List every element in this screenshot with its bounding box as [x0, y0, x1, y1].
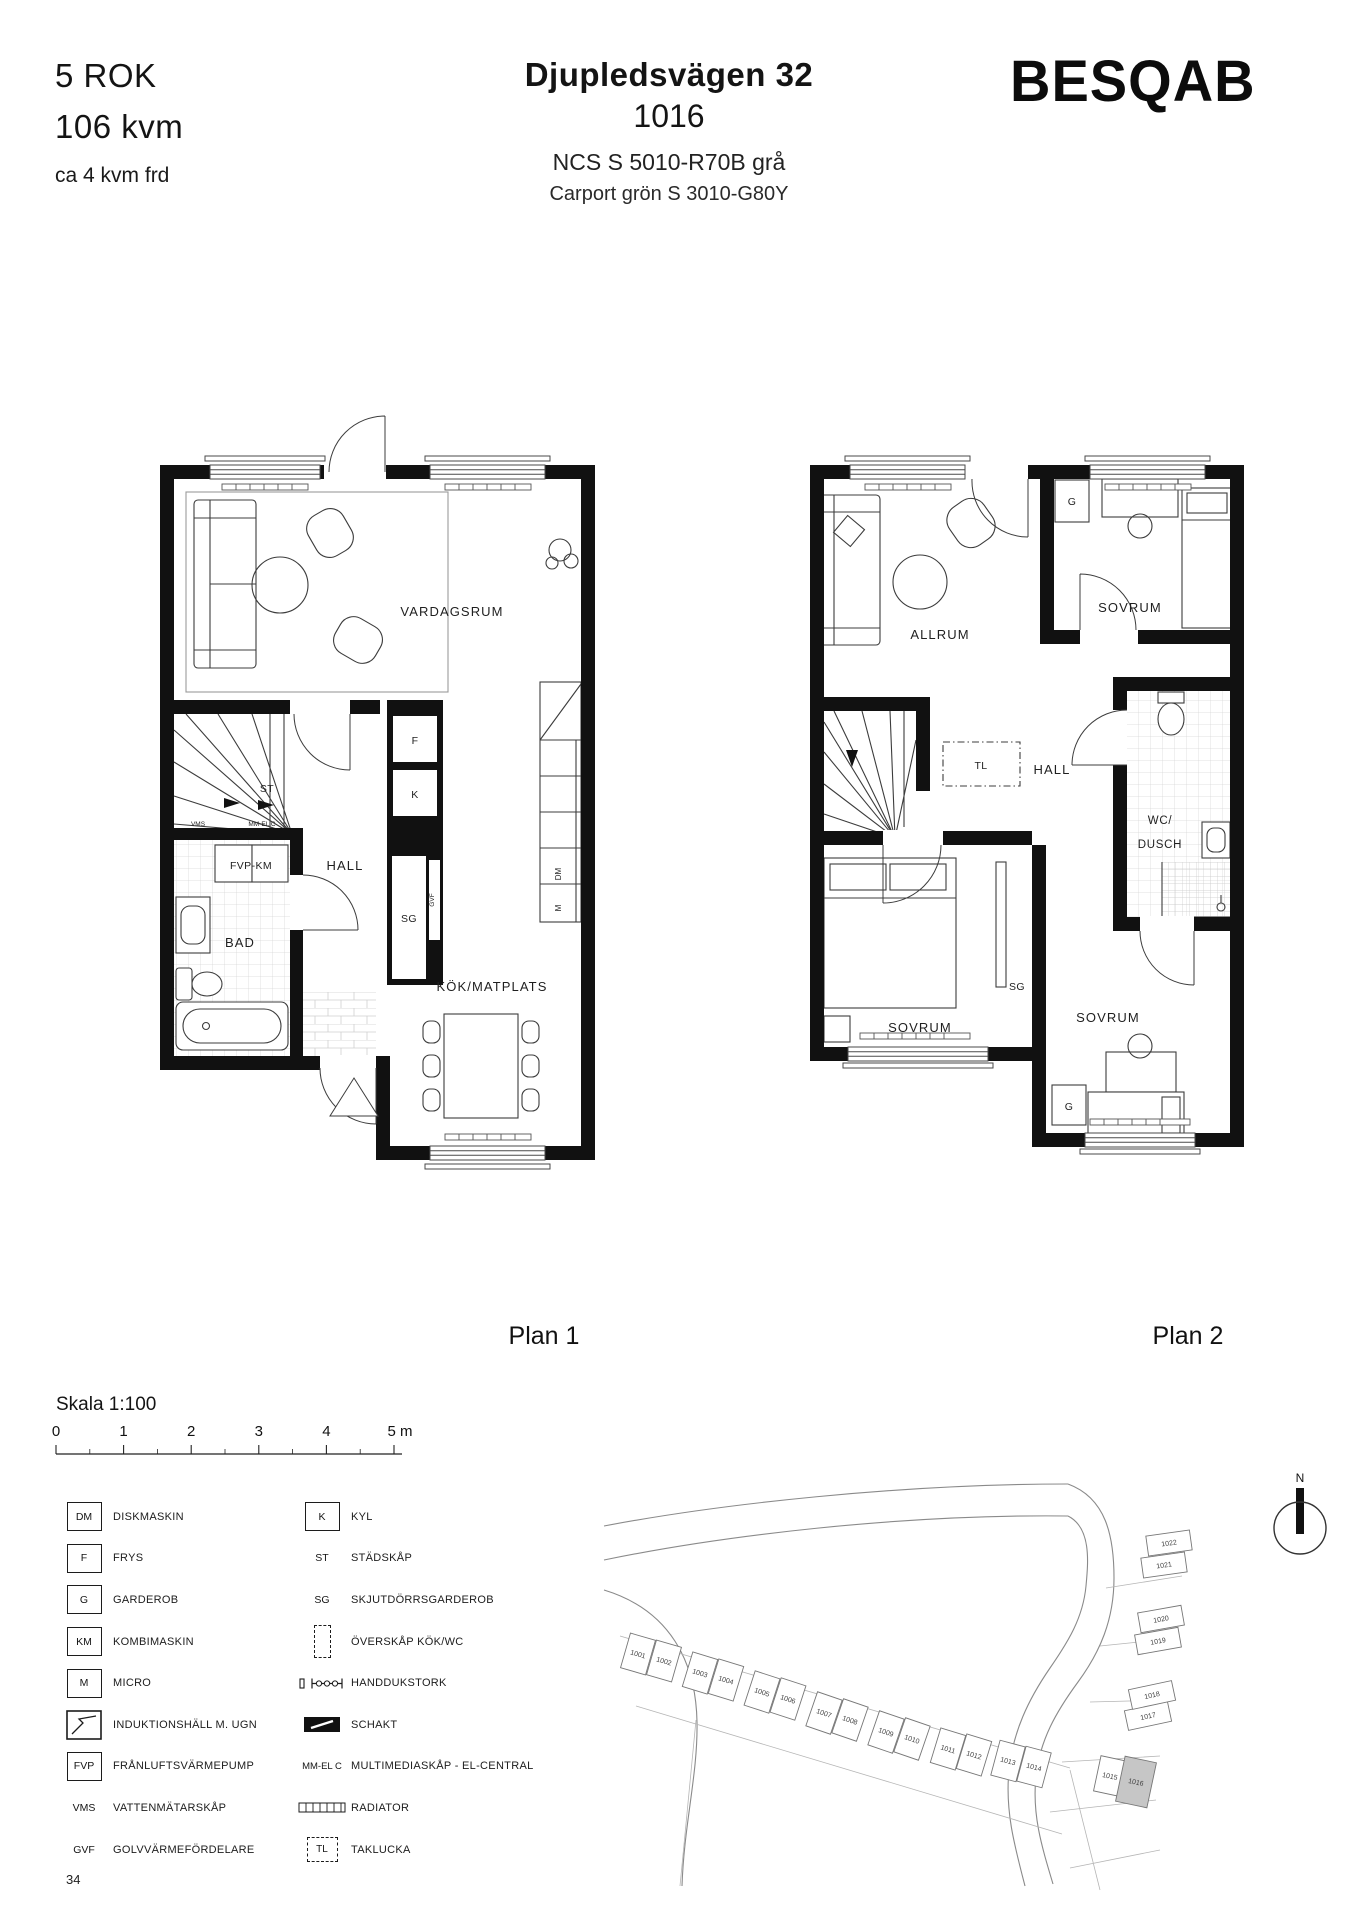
room-label-hall: HALL — [1034, 762, 1071, 777]
plan1-labels: VARDAGSRUM HALL BAD KÖK/MATPLATS FVP-KM … — [191, 604, 563, 994]
plan1-caption: Plan 1 — [434, 1322, 654, 1351]
bedroom3-door — [1140, 931, 1194, 985]
north-arrow: N — [1274, 1471, 1326, 1554]
legend-row: STSTÄDSKÅP — [293, 1538, 643, 1580]
sofa — [818, 495, 880, 645]
sink — [176, 897, 210, 953]
bathtub — [176, 1002, 288, 1050]
ruler-tick-4: 4 — [322, 1423, 330, 1440]
gvf-symbol: GVF — [73, 1844, 95, 1856]
room-label-kok: KÖK/MATPLATS — [437, 979, 548, 994]
legend-row: ÖVERSKÅP KÖK/WC — [293, 1621, 643, 1663]
st-symbol: ST — [315, 1552, 328, 1564]
ruler-tick-3: 3 — [255, 1423, 263, 1440]
north-label: N — [1296, 1471, 1305, 1485]
armchair — [941, 492, 1002, 554]
fvp-symbol: FVP — [67, 1752, 102, 1781]
double-bed — [824, 858, 956, 1008]
legend-row: GVFGOLVVÄRMEFÖRDELARE — [55, 1829, 325, 1871]
sitemap-roads — [604, 1484, 1114, 1886]
rug — [186, 492, 448, 692]
label-dm: DM — [554, 867, 563, 880]
unit-number: 1016 — [433, 98, 905, 135]
floorplan-sheet: 5 ROK 106 kvm ca 4 kvm frd Djupledsvägen… — [0, 0, 1366, 1931]
ruler-tick-0: 0 — [52, 1423, 60, 1440]
tl-symbol: TL — [307, 1837, 338, 1862]
stair-arrow — [224, 798, 240, 808]
label-g2: G — [1065, 1101, 1074, 1113]
sg-symbol: SG — [314, 1594, 329, 1606]
legend-row: FVPFRÅNLUFTSVÄRMEPUMP — [55, 1746, 325, 1788]
room-label-allrum: ALLRUM — [910, 627, 969, 642]
legend-row: TLTAKLUCKA — [293, 1829, 643, 1871]
round-table — [893, 555, 947, 609]
single-bed — [1182, 488, 1232, 628]
page-number: 34 — [66, 1872, 80, 1887]
stair-arrow — [846, 750, 858, 767]
dining-table — [444, 1014, 518, 1118]
ruler-tick-5: 5 m — [387, 1423, 412, 1440]
apartment-spec: 5 ROK 106 kvm ca 4 kvm frd — [55, 50, 183, 188]
towel-rail-icon — [299, 1676, 345, 1691]
desk-chair — [1128, 514, 1152, 538]
label-mm-el-c: MM-EL C — [248, 821, 276, 828]
bathroom-door — [303, 875, 358, 930]
wall-cabinet-icon — [314, 1625, 331, 1658]
dining-chairs — [423, 1021, 539, 1111]
entrance-marker — [330, 1078, 378, 1116]
stair-landing-door — [972, 479, 1028, 537]
legend-row: KKYL — [293, 1496, 643, 1538]
single-bed — [1088, 1092, 1184, 1138]
room-label-bad: BAD — [225, 935, 255, 950]
legend-row: HANDDUKSTORK — [293, 1662, 643, 1704]
rooms-count: 5 ROK — [55, 50, 183, 101]
dm-symbol: DM — [67, 1502, 102, 1531]
radiator-icon — [298, 1802, 346, 1813]
sink — [1202, 822, 1230, 858]
room-label-hall: HALL — [327, 858, 364, 873]
legend-row: DMDISKMASKIN — [55, 1496, 325, 1538]
room-label-sovrum2: SOVRUM — [888, 1020, 952, 1035]
label-k: K — [411, 789, 418, 801]
besqab-logo: BESQAB — [1010, 47, 1256, 115]
g-symbol: G — [67, 1585, 102, 1614]
shower-floor-tiles — [1162, 862, 1230, 917]
ruler-tick-1: 1 — [119, 1423, 127, 1440]
sliding-wardrobe — [996, 862, 1006, 987]
legend-row: MM-EL CMULTIMEDIASKÅP - EL-CENTRAL — [293, 1746, 643, 1788]
plan1-furniture — [174, 492, 581, 1118]
sitemap-lot-1021: 1021 — [1141, 1552, 1187, 1578]
storage-area: ca 4 kvm frd — [55, 164, 183, 188]
label-st: ST — [260, 783, 274, 795]
room-label-dusch: DUSCH — [1138, 839, 1182, 851]
sofa — [194, 500, 256, 668]
label-vms: VMS — [191, 821, 206, 828]
round-table — [252, 557, 308, 613]
label-tl: TL — [974, 760, 987, 772]
label-fvp-km: FVP-KM — [230, 860, 272, 872]
sheet-title: Djupledsvägen 32 1016 NCS S 5010-R70B gr… — [433, 56, 905, 206]
site-map: 1001100210031004100510061007100810091010… — [600, 1470, 1340, 1900]
km-symbol: KM — [67, 1627, 102, 1656]
facade-color-spec: NCS S 5010-R70B grå — [433, 149, 905, 176]
living-area: 106 kvm — [55, 101, 183, 152]
legend-row: RADIATOR — [293, 1787, 643, 1829]
sitemap-lot-1022: 1022 — [1146, 1530, 1192, 1556]
label-f: F — [412, 735, 419, 747]
spiral-stair — [174, 714, 292, 834]
induction-hob-oven-icon — [66, 1710, 102, 1740]
spiral-stair — [824, 711, 916, 838]
armchair — [328, 611, 388, 669]
carport-color-spec: Carport grön S 3010-G80Y — [433, 183, 905, 206]
north-needle — [1296, 1488, 1304, 1534]
f-symbol: F — [67, 1544, 102, 1573]
address: Djupledsvägen 32 — [433, 56, 905, 94]
armchair — [301, 503, 359, 563]
legend-row: KMKOMBIMASKIN — [55, 1621, 325, 1663]
label-m: M — [554, 904, 563, 911]
ruler-tick-2: 2 — [187, 1423, 195, 1440]
legend-right-column: KKYL STSTÄDSKÅP SGSKJUTDÖRRSGARDEROB ÖVE… — [293, 1496, 643, 1870]
legend-row: FFRYS — [55, 1538, 325, 1580]
livingroom-door — [294, 714, 350, 770]
k-symbol: K — [305, 1502, 340, 1531]
room-label-vardagsrum: VARDAGSRUM — [400, 604, 503, 619]
sitemap-lots: 1001100210031004100510061007100810091010… — [621, 1530, 1193, 1808]
scale-ruler: 0 1 2 3 4 5 m — [50, 1420, 450, 1470]
room-label-sovrum3: SOVRUM — [1076, 1010, 1140, 1025]
legend-row: INDUKTIONSHÄLL M. UGN — [55, 1704, 325, 1746]
legend-row: GGARDEROB — [55, 1579, 325, 1621]
legend-left-column: DMDISKMASKIN FFRYS GGARDEROB KMKOMBIMASK… — [55, 1496, 325, 1870]
mm-el-c-symbol: MM-EL C — [302, 1761, 342, 1772]
vms-symbol: VMS — [73, 1802, 96, 1814]
legend-row: MMICRO — [55, 1662, 325, 1704]
label-sg: SG — [401, 913, 417, 925]
nightstand — [824, 1016, 850, 1042]
m-symbol: M — [67, 1669, 102, 1698]
toilet — [1158, 692, 1184, 735]
plant — [546, 539, 578, 569]
floor-plan-2: ALLRUM SOVRUM G TL HALL WC/ DUSCH SOVRUM… — [790, 400, 1270, 1180]
kitchen-counter — [540, 682, 581, 922]
floor-plan-1: VARDAGSRUM HALL BAD KÖK/MATPLATS FVP-KM … — [140, 400, 620, 1180]
room-label-sovrum1: SOVRUM — [1098, 600, 1162, 615]
shaft-icon — [303, 1716, 341, 1733]
legend-row: SCHAKT — [293, 1704, 643, 1746]
label-sg: SG — [1009, 981, 1025, 993]
scale-label: Skala 1:100 — [56, 1394, 156, 1416]
label-g1: G — [1068, 496, 1077, 508]
label-gvf: GVF — [429, 893, 436, 906]
legend-row: SGSKJUTDÖRRSGARDEROB — [293, 1579, 643, 1621]
plan2-caption: Plan 2 — [1078, 1322, 1298, 1351]
legend: DMDISKMASKIN FFRYS GGARDEROB KMKOMBIMASK… — [55, 1496, 675, 1876]
room-label-wc: WC/ — [1148, 815, 1173, 827]
legend-row: VMSVATTENMÄTARSKÅP — [55, 1787, 325, 1829]
terrace-door — [329, 416, 385, 472]
entry-floor-tiles — [303, 992, 376, 1056]
